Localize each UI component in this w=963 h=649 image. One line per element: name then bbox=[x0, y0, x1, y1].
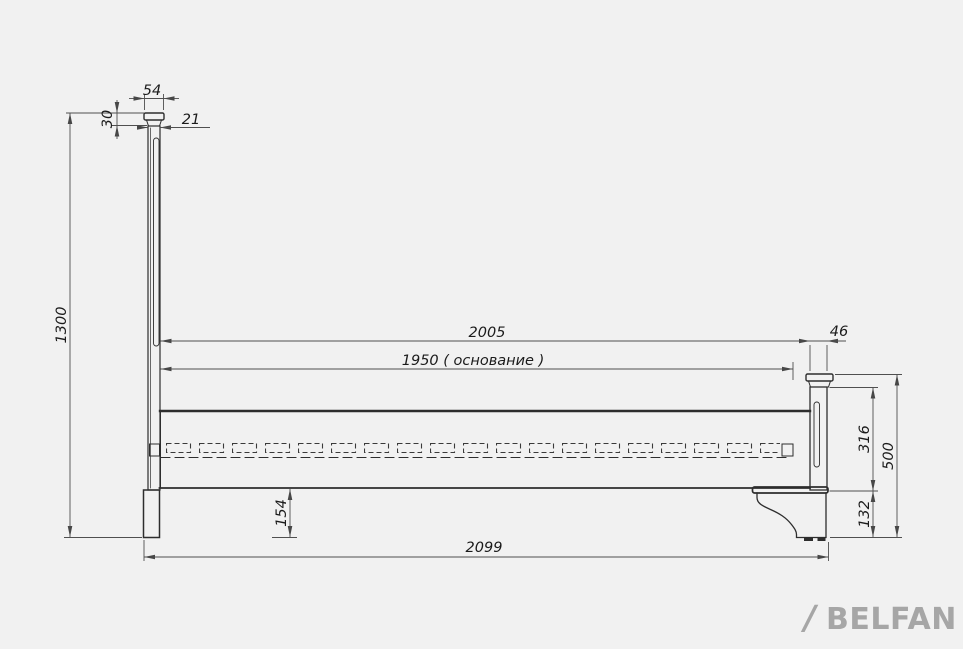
frame-length-label: 2005 bbox=[469, 325, 506, 341]
footboard-panel-height-label: 316 bbox=[857, 425, 873, 453]
overall-length-label: 2099 bbox=[466, 540, 503, 556]
cap-height-label: 30 bbox=[100, 110, 116, 128]
under-rail-height-label: 154 bbox=[274, 499, 290, 527]
footboard-height-label: 500 bbox=[881, 442, 897, 470]
cap-width-label: 54 bbox=[143, 83, 161, 99]
foot-pad-right bbox=[818, 538, 826, 542]
footboard-thickness-label: 46 bbox=[830, 324, 848, 340]
footboard-lower-height-label: 132 bbox=[857, 500, 873, 528]
post-thickness-label: 21 bbox=[182, 112, 200, 128]
logo-brand-text: BELFAN bbox=[826, 602, 957, 637]
foot-pad-left bbox=[804, 538, 813, 542]
bed-slats-hidden bbox=[166, 443, 780, 454]
drawing-page: 54 30 21 1300 2005 1950 ( основание ) 46… bbox=[0, 0, 963, 649]
overall-height-label: 1300 bbox=[54, 307, 70, 344]
base-length-label: 1950 ( основание ) bbox=[402, 353, 545, 369]
technical-drawing: 54 30 21 1300 2005 1950 ( основание ) 46… bbox=[0, 0, 963, 649]
